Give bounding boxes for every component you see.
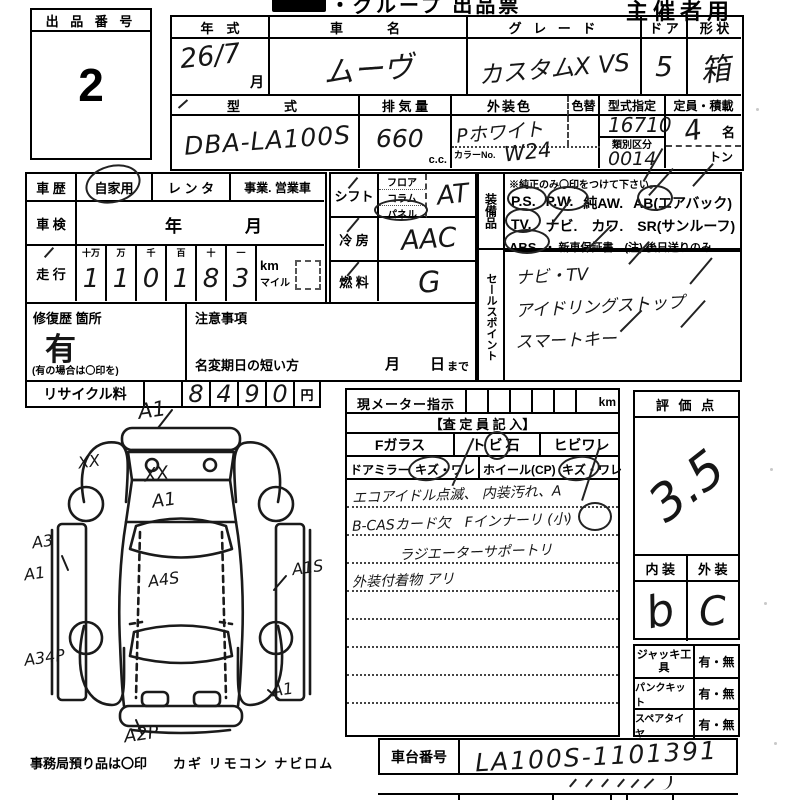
- cropped-table-edge: [378, 793, 738, 800]
- exterior-label: 外 装: [688, 556, 739, 580]
- table-row: スペアタイヤ 有・無: [635, 710, 738, 739]
- name-value: ムーヴ: [322, 41, 415, 91]
- caution-box: 注意事項 名変期日の短い方 月 日 まで: [185, 302, 477, 382]
- damage-code: A1: [23, 563, 47, 585]
- equipment-row2: TV. ナビ. カワ. SR(サンルーフ): [505, 213, 740, 236]
- lot-number-box: 出 品 番 号 2: [30, 8, 152, 160]
- exterior-value: C: [696, 587, 729, 636]
- meter-cell: [509, 390, 531, 412]
- fuel-value-cell: G: [379, 262, 479, 301]
- note-line: ラジエーターサポートリ: [347, 536, 618, 564]
- odometer-digit: 8: [197, 259, 225, 299]
- name-cell: ムーヴ: [270, 39, 468, 96]
- mile-checkbox: [295, 260, 321, 290]
- interior-cell: b: [635, 582, 688, 641]
- odometer-digit-header: 十: [197, 246, 225, 259]
- meter-label: 現メーター指示: [357, 394, 455, 413]
- rename-made: まで: [447, 358, 469, 374]
- mirror-wheel-row: ドアミラー キズ・ワレ ホイール(CP) キズ・ワレ: [347, 457, 618, 480]
- odometer-digit-cell: 千 0: [137, 246, 167, 301]
- chassis-value: LA100S-1101391: [474, 736, 718, 778]
- exterior-cell: C: [688, 582, 739, 641]
- meter-cell: [553, 390, 575, 412]
- displacement-cell: 660 c.c.: [360, 116, 452, 168]
- displacement-unit: c.c.: [429, 154, 447, 166]
- odometer-digit-header: 万: [107, 246, 135, 259]
- punkkit-value: 有・無: [695, 679, 738, 708]
- odometer-digit: 1: [107, 259, 135, 299]
- logo-blob: [272, 0, 326, 12]
- meter-cell: [487, 390, 509, 412]
- capacity-divider: [666, 145, 741, 147]
- rating-box: 評 価 点 3.5 内 装 外 装 b C: [633, 390, 740, 640]
- rating-subheader: 内 装 外 装: [635, 554, 738, 582]
- inspection-month-label: 月: [245, 212, 262, 237]
- equip-tv: TV.: [511, 216, 532, 236]
- ac-value-cell: AAC: [379, 218, 479, 262]
- caution-label: 注意事項: [195, 308, 247, 327]
- note-text: エコアイドル点滅、 内装汚れ、A: [352, 480, 562, 507]
- displacement-value: 660: [376, 124, 424, 153]
- table-row: パンクキット 有・無: [635, 679, 738, 710]
- shape-value: 箱: [697, 43, 731, 90]
- mirror-opts: キズ・ワレ: [415, 461, 475, 478]
- mileage-label: 走 行: [27, 246, 77, 301]
- note-line: [347, 592, 618, 620]
- equip-navi: ナビ.: [546, 216, 578, 236]
- fglass-opt-stone: トビ石: [455, 434, 541, 455]
- lot-number-value: 2: [32, 40, 150, 130]
- ac-value: AAC: [400, 222, 458, 257]
- odometer-digit-cell: 百 1: [167, 246, 197, 301]
- history-table: 車 歴 自家用 レ ン タ 事業. 営業車 車 検 年 月 走 行 十万 1 万…: [25, 172, 327, 304]
- grade-header: グ レ ー ド: [468, 17, 642, 39]
- displacement-header: 排 気 量: [360, 96, 452, 116]
- equip-sr: SR(サンルーフ): [637, 216, 735, 236]
- meter-cell: [531, 390, 553, 412]
- damage-code: A1: [271, 679, 295, 701]
- model-value: DBA-LA100S: [183, 120, 352, 161]
- rating-score: 3.5: [637, 439, 735, 534]
- type-designation-value: 16710: [608, 113, 672, 137]
- equipment-side-label: 装備品: [479, 174, 503, 250]
- check-strokes: [572, 776, 682, 790]
- odometer-digit-cell: 一 3: [227, 246, 257, 301]
- jack-value: 有・無: [695, 646, 738, 677]
- wheel-label: ホイール(CP): [483, 461, 556, 478]
- note-line: [347, 620, 618, 648]
- rating-label: 評 価 点: [635, 392, 738, 418]
- equip-ab: AB(エアバック): [633, 193, 732, 213]
- shift-options: フロア コラム パネル: [379, 174, 427, 218]
- door-header: ド ア: [642, 17, 688, 39]
- table-row: ジャッキ工具 有・無: [635, 646, 738, 679]
- rename-label: 名変期日の短い方: [195, 355, 299, 374]
- name-header: 車 名: [270, 17, 468, 39]
- door-value: 5: [655, 50, 673, 83]
- note-line: [347, 676, 618, 704]
- damage-code: XX: [77, 451, 101, 473]
- capacity-cell: 4 名 トン: [666, 116, 741, 168]
- door-cell: 5: [642, 39, 688, 96]
- rename-month: 月: [385, 353, 400, 374]
- odometer-digit: 0: [137, 259, 165, 299]
- punkkit-label: パンクキット: [635, 679, 695, 708]
- color-change-divider: [567, 116, 569, 146]
- color-change-header: 色替: [567, 96, 600, 116]
- year-header: 年 式: [172, 17, 270, 39]
- inspection-cell: 年 月: [77, 202, 324, 246]
- inspection-year-label: 年: [165, 212, 182, 237]
- wheel-opts: キズ・ワレ: [562, 461, 622, 478]
- colorno-label: カラーNo.: [454, 151, 496, 160]
- controls-table: シフト フロア コラム パネル AT 冷 房 AAC 燃 料 G: [329, 172, 477, 304]
- year-cell: 26/7 月: [172, 39, 270, 96]
- damage-code: A1: [151, 488, 177, 512]
- note-text: ラジエーターサポートリ: [399, 539, 553, 564]
- odometer-digit-header: 千: [137, 246, 165, 259]
- equip-ps: P.S.: [511, 193, 536, 213]
- fglass-row: Fガラス トビ石 ヒビワレ: [347, 434, 618, 457]
- accessories-table: ジャッキ工具 有・無 パンクキット 有・無 スペアタイヤ 有・無: [633, 644, 740, 737]
- note-line: B-CASカード欠 Fインナーリ (小): [347, 508, 618, 536]
- class-value: 0014: [608, 148, 656, 170]
- meter-unit: km: [599, 395, 616, 409]
- auction-sheet: ・グループ 出品票 主催者用 出 品 番 号 2 年 式 車 名 グ レ ー ド…: [0, 0, 800, 800]
- odometer-digit: 1: [167, 259, 195, 299]
- history-rental: レ ン タ: [153, 174, 231, 202]
- equip-leather: カワ.: [591, 216, 623, 236]
- odometer-digit-cell: 万 1: [107, 246, 137, 301]
- history-private: 自家用: [77, 174, 153, 202]
- damage-code: XX: [143, 462, 170, 486]
- odometer-digit: 1: [77, 259, 105, 299]
- fglass-opt-crack: ヒビワレ: [541, 434, 622, 455]
- odometer-unit-cell: km マイル: [257, 246, 297, 301]
- colorno-value: W24: [503, 138, 553, 167]
- chassis-label: 車台番号: [380, 740, 460, 773]
- capacity-unit: 名: [722, 122, 735, 141]
- repair-note: (有の場合は〇印を): [32, 362, 119, 377]
- interior-value: b: [641, 584, 679, 640]
- odometer-digit-header: 百: [167, 246, 195, 259]
- grade-cell: カスタムX VS: [468, 39, 642, 96]
- shift-column: コラム: [379, 190, 425, 206]
- jack-label: ジャッキ工具: [635, 646, 695, 677]
- salespoint-side-label: セールスポイント: [479, 252, 503, 382]
- shape-cell: 箱: [688, 39, 741, 96]
- meter-header-row: 現メーター指示 km: [347, 390, 618, 414]
- color-cell: Pホワイト カラーNo. W24: [452, 116, 600, 168]
- odometer-digit-cell: 十 8: [197, 246, 227, 301]
- rename-day: 日: [430, 353, 445, 374]
- grade-value: カスタムX VS: [477, 42, 631, 90]
- sheet-title: ・グループ 出品票: [272, 0, 521, 16]
- odometer-digit: 3: [227, 259, 255, 299]
- rating-values: b C: [635, 582, 738, 641]
- repair-box: 修復歴 箇所 有 (有の場合は〇印を): [25, 302, 187, 382]
- lot-number-label: 出 品 番 号: [32, 10, 150, 32]
- shift-value: AT: [436, 178, 471, 211]
- odometer-digit-header: 一: [227, 246, 255, 259]
- note-line: [347, 648, 618, 676]
- mirror-label: ドアミラー: [350, 461, 410, 478]
- model-header: 型 式: [172, 96, 360, 116]
- km-label: km: [260, 258, 279, 273]
- shift-floor: フロア: [379, 174, 425, 190]
- meter-cell: [575, 390, 597, 412]
- capacity-header: 定員・積載: [666, 96, 741, 116]
- type-designation-cell: 16710 類別区分 0014: [600, 116, 666, 168]
- damage-code: A3: [31, 531, 55, 553]
- note-line: エコアイドル点滅、 内装汚れ、A: [347, 480, 618, 508]
- sparetire-label: スペアタイヤ: [635, 710, 695, 739]
- note-line: 外装付着物 アリ: [347, 564, 618, 592]
- equipment-panel: ※純正のみ〇印をつけて下さい。 P.S. P.W. 純AW. AB(エアバック)…: [503, 172, 742, 250]
- color-header: 外装色: [452, 96, 567, 116]
- equipment-row1: P.S. P.W. 純AW. AB(エアバック): [505, 191, 740, 213]
- history-business: 事業. 営業車: [231, 174, 324, 202]
- fuel-label: 燃 料: [331, 262, 379, 301]
- mirror-cell: ドアミラー キズ・ワレ: [347, 457, 480, 478]
- salespoint-line: スマートキー: [504, 312, 740, 353]
- mile-label: マイル: [260, 274, 290, 289]
- equipment-note: ※純正のみ〇印をつけて下さい。: [505, 174, 740, 191]
- model-cell: DBA-LA100S: [172, 116, 360, 168]
- side-strip: 装備品 セールスポイント: [477, 172, 505, 382]
- vehicle-table: 年 式 車 名 グ レ ー ド ド ア 形 状 26/7 月 ムーヴ カスタムX…: [170, 15, 744, 171]
- history-label: 車 歴: [27, 174, 77, 202]
- wheel-cell: ホイール(CP) キズ・ワレ: [480, 457, 622, 478]
- shift-value-cell: AT: [427, 174, 479, 218]
- salespoint-panel: ナビ・TV アイドリングストップ スマートキー: [503, 250, 742, 382]
- equip-aw: 純AW.: [583, 193, 623, 213]
- year-value: 26/7: [179, 38, 243, 75]
- car-diagram-drawing: [20, 398, 340, 758]
- fglass-label: Fガラス: [347, 434, 455, 455]
- shape-header: 形 状: [688, 17, 741, 39]
- ac-label: 冷 房: [331, 218, 379, 262]
- interior-label: 内 装: [635, 556, 688, 580]
- fuel-value: G: [417, 264, 442, 299]
- car-diagram: A1 XX XX A1 A3 A1 A1S A4S A34P A1 A2P: [20, 398, 340, 758]
- assessor-header: 【査 定 員 記 入】: [347, 414, 618, 434]
- meter-table: 現メーター指示 km 【査 定 員 記 入】 Fガラス トビ石 ヒビワレ ドアミ…: [345, 388, 620, 737]
- equip-pw: P.W.: [546, 193, 574, 213]
- colorno-row: カラーNo. W24: [452, 146, 600, 168]
- rating-score-cell: 3.5: [635, 418, 738, 554]
- note-text: B-CASカード欠 Fインナーリ (小): [352, 508, 573, 536]
- meter-cell: [465, 390, 487, 412]
- inspection-label: 車 検: [27, 202, 77, 246]
- damage-code: A1: [136, 396, 167, 424]
- capacity-value: 4: [681, 113, 704, 149]
- month-suffix: 月: [250, 72, 264, 92]
- note-text: 外装付着物 アリ: [352, 568, 455, 592]
- shift-label: シフト: [331, 174, 379, 218]
- odometer-digit-header: 十万: [77, 246, 105, 259]
- odometer-digit-cell: 十万 1: [77, 246, 107, 301]
- ton-label: トン: [709, 148, 733, 165]
- chassis-row: 車台番号 LA100S-1101391: [378, 738, 738, 775]
